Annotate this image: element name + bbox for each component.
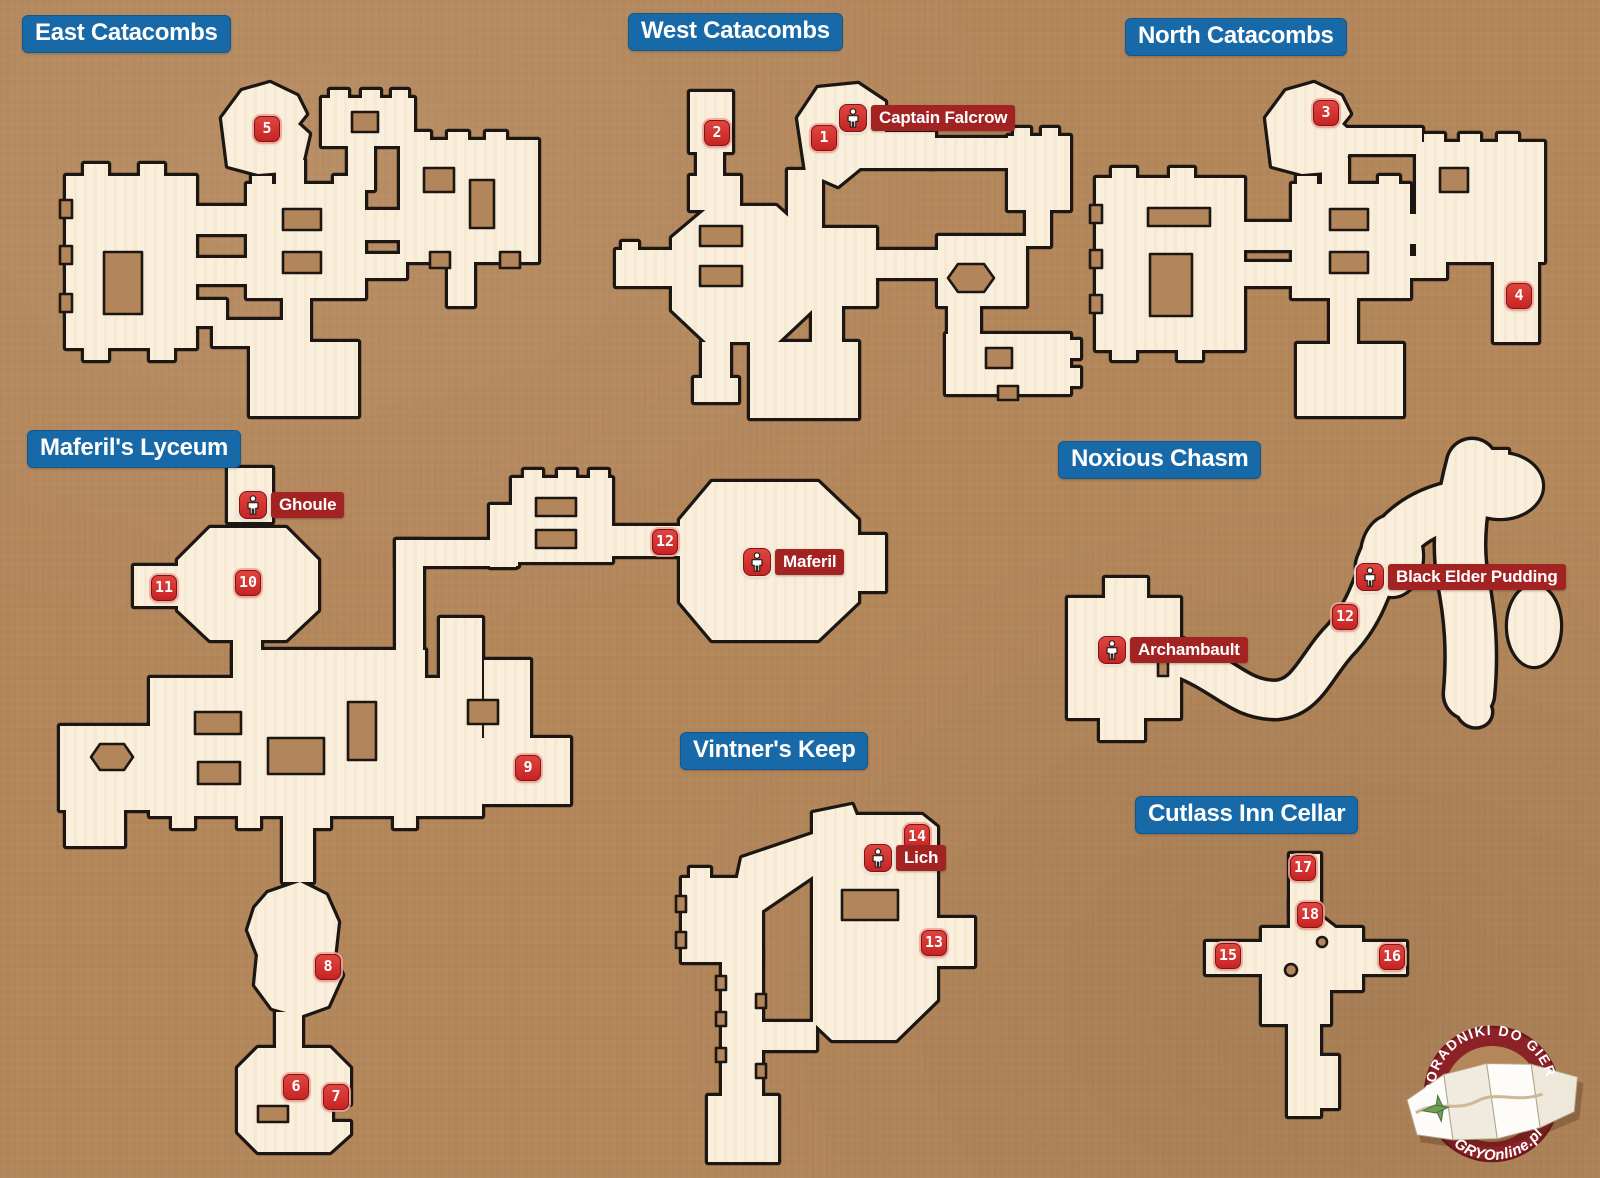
npc-person-icon-archambault <box>1098 636 1126 664</box>
poi-marker-west-catacombs-1: 1 <box>811 125 837 151</box>
poi-marker-cutlass-inn-cellar-18: 18 <box>1297 902 1323 928</box>
poi-marker-north-catacombs-4: 4 <box>1506 283 1532 309</box>
poi-marker-cutlass-inn-cellar-17: 17 <box>1290 855 1316 881</box>
npc-label-ghoule: Ghoule <box>271 492 344 518</box>
map-title-north-catacombs: North Catacombs <box>1125 18 1347 56</box>
poi-marker-maferils-lyceum-10: 10 <box>235 570 261 596</box>
npc-person-icon-lich <box>864 844 892 872</box>
npc-label-lich: Lich <box>896 845 946 871</box>
npc-person-icon-maferil <box>743 548 771 576</box>
map-title-cutlass-inn-cellar: Cutlass Inn Cellar <box>1135 796 1358 834</box>
poi-marker-maferils-lyceum-8: 8 <box>315 954 341 980</box>
npc-person-icon-ghoule <box>239 491 267 519</box>
poi-marker-cutlass-inn-cellar-15: 15 <box>1215 943 1241 969</box>
npc-label-archambault: Archambault <box>1130 637 1248 663</box>
poi-marker-maferils-lyceum-11: 11 <box>151 575 177 601</box>
npc-person-icon-black-elder-pudding <box>1356 563 1384 591</box>
poi-marker-maferils-lyceum-6: 6 <box>283 1074 309 1100</box>
poi-marker-east-catacombs-5: 5 <box>254 116 280 142</box>
poi-marker-maferils-lyceum-12: 12 <box>652 529 678 555</box>
poi-marker-maferils-lyceum-9: 9 <box>515 755 541 781</box>
npc-label-captain-falcrow: Captain Falcrow <box>871 105 1015 131</box>
poi-marker-cutlass-inn-cellar-16: 16 <box>1379 944 1405 970</box>
map-title-west-catacombs: West Catacombs <box>628 13 843 51</box>
npc-label-black-elder-pudding: Black Elder Pudding <box>1388 564 1566 590</box>
poi-marker-west-catacombs-2: 2 <box>704 120 730 146</box>
map-title-noxious-chasm: Noxious Chasm <box>1058 441 1261 479</box>
npc-person-icon-captain-falcrow <box>839 104 867 132</box>
map-title-vintners-keep: Vintner's Keep <box>680 732 868 770</box>
guide-map-canvas: East CatacombsWest CatacombsNorth Cataco… <box>0 0 1600 1178</box>
poi-marker-vintners-keep-13: 13 <box>921 930 947 956</box>
npc-label-maferil: Maferil <box>775 549 844 575</box>
poi-marker-north-catacombs-3: 3 <box>1313 100 1339 126</box>
poi-marker-noxious-chasm-12: 12 <box>1332 604 1358 630</box>
map-title-east-catacombs: East Catacombs <box>22 15 231 53</box>
markers-overlay: East CatacombsWest CatacombsNorth Cataco… <box>0 0 1600 1178</box>
poi-marker-maferils-lyceum-7: 7 <box>323 1084 349 1110</box>
map-title-maferils-lyceum: Maferil's Lyceum <box>27 430 241 468</box>
